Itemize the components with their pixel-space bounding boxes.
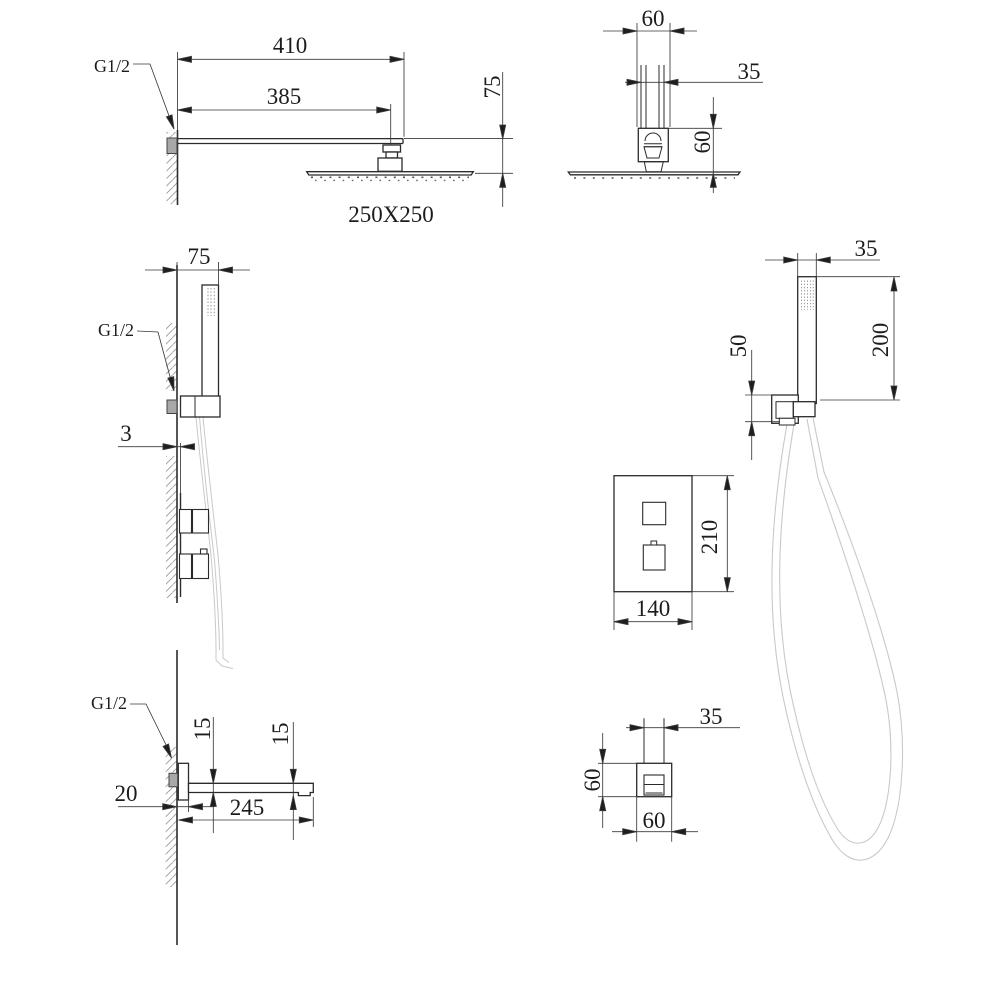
view-hand-shower-side [166,265,233,669]
hand-shower-wand-side [202,285,219,397]
labels-spout-side: G1/2 15 15 20 245 [91,693,293,820]
wall-nipple [167,400,177,414]
wall-nipple [167,138,177,154]
dim-label-410: 410 [273,33,308,58]
dims-rain-head-front [603,23,763,193]
valve-knob-lower [643,545,665,570]
dim-label-15-a: 15 [190,718,215,741]
dim-label-140: 140 [636,596,671,621]
spout-flange [178,763,188,800]
dim-label-15-b: 15 [268,723,293,746]
rain-head-plate-front [568,172,740,175]
dim-label-60-height: 60 [690,131,715,154]
joint-collar [644,162,663,172]
dim-label-210: 210 [697,520,722,555]
dim-label-250x250: 250X250 [348,202,434,227]
supply-pipe-front [644,718,664,763]
dim-label-35-pipe: 35 [738,59,761,84]
g12-leader [133,64,172,124]
valve-plate [614,476,692,592]
dim-label-75-offset: 75 [188,244,211,269]
view-hand-shower-front [772,277,903,860]
dims-rain-shower-side [133,52,513,207]
spout-body [189,783,314,795]
wall-hatch-lower [166,456,177,598]
dim-label-200: 200 [868,323,893,358]
valve-knob-upper [643,502,666,524]
valve-trim-side [180,510,209,579]
dim-label-35-width: 35 [855,236,878,261]
dim-label-20: 20 [115,781,138,806]
view-spout-front [637,718,672,796]
holder-bracket-side [181,396,221,417]
dim-label-385: 385 [267,84,302,109]
shower-hose-side [196,417,233,669]
dim-label-35-pipe-f: 35 [700,704,723,729]
wand-elbow [793,402,815,417]
dim-label-50: 50 [726,335,751,358]
arm-nut-lower [386,152,398,158]
view-valve-trim-front [614,476,692,592]
supply-pipe [641,65,664,128]
ball-joint-housing [378,158,402,171]
bracket-inner [776,402,793,419]
bracket-foot [779,418,795,425]
thread-label-g12-e: G1/2 [91,693,127,713]
view-rain-shower-side [167,130,474,205]
knob-tab [651,541,657,545]
dim-label-75-drop: 75 [480,76,505,99]
dim-label-245: 245 [230,795,265,820]
arm-nut [383,145,401,152]
hand-shower-wand [798,277,817,404]
shower-hose-loop [772,418,903,860]
shower-arm [178,139,404,144]
dim-label-3-plate: 3 [120,421,132,446]
wall-nipple [169,773,178,787]
wall-hatch [166,747,177,887]
dim-label-60-top: 60 [642,6,665,31]
thread-label-g12-a: G1/2 [94,56,130,76]
dim-label-60-bottom-f: 60 [643,808,666,833]
thread-label-g12-c: G1/2 [98,320,134,340]
labels-rain-shower-side: 410 385 75 250X250 G1/2 [94,33,505,227]
dim-label-60-side-f: 60 [580,769,605,792]
dims-hand-shower-side [118,262,250,493]
rain-head-plate [307,172,474,175]
technical-drawing-sheet: 410 385 75 250X250 G1/2 60 35 60 [0,0,1000,1000]
shower-system-dimension-drawing: 410 385 75 250X250 G1/2 60 35 60 [0,0,1000,1000]
knob-tab [201,549,208,554]
spout-square-face [637,763,672,796]
